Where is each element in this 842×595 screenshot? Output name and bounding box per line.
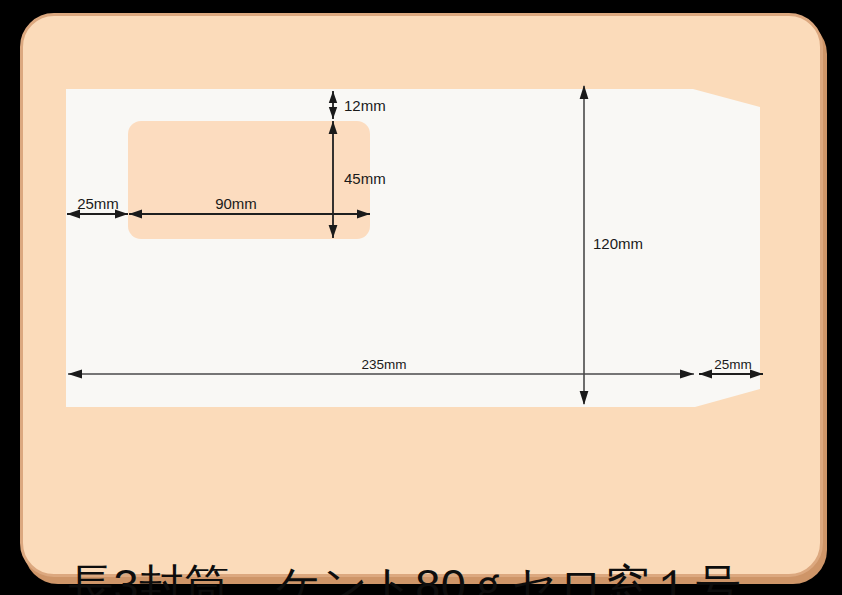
caption-line1: 長3封筒 ケント80ｇセロ窓１号 <box>68 557 741 595</box>
dim-label-25mm-right: 25mm <box>714 357 752 372</box>
page-background: 12mm 45mm 25mm 90mm 120mm <box>0 0 842 595</box>
dim-label-90mm: 90mm <box>215 195 257 212</box>
dim-label-25mm-left: 25mm <box>77 195 119 212</box>
dim-label-235mm: 235mm <box>361 357 406 372</box>
dim-label-12mm: 12mm <box>344 97 386 114</box>
dim-label-45mm: 45mm <box>344 170 386 187</box>
caption-text: 長3封筒 ケント80ｇセロ窓１号 仕上がり 235x120mm+25 <box>68 443 741 595</box>
dim-label-120mm: 120mm <box>593 235 643 252</box>
